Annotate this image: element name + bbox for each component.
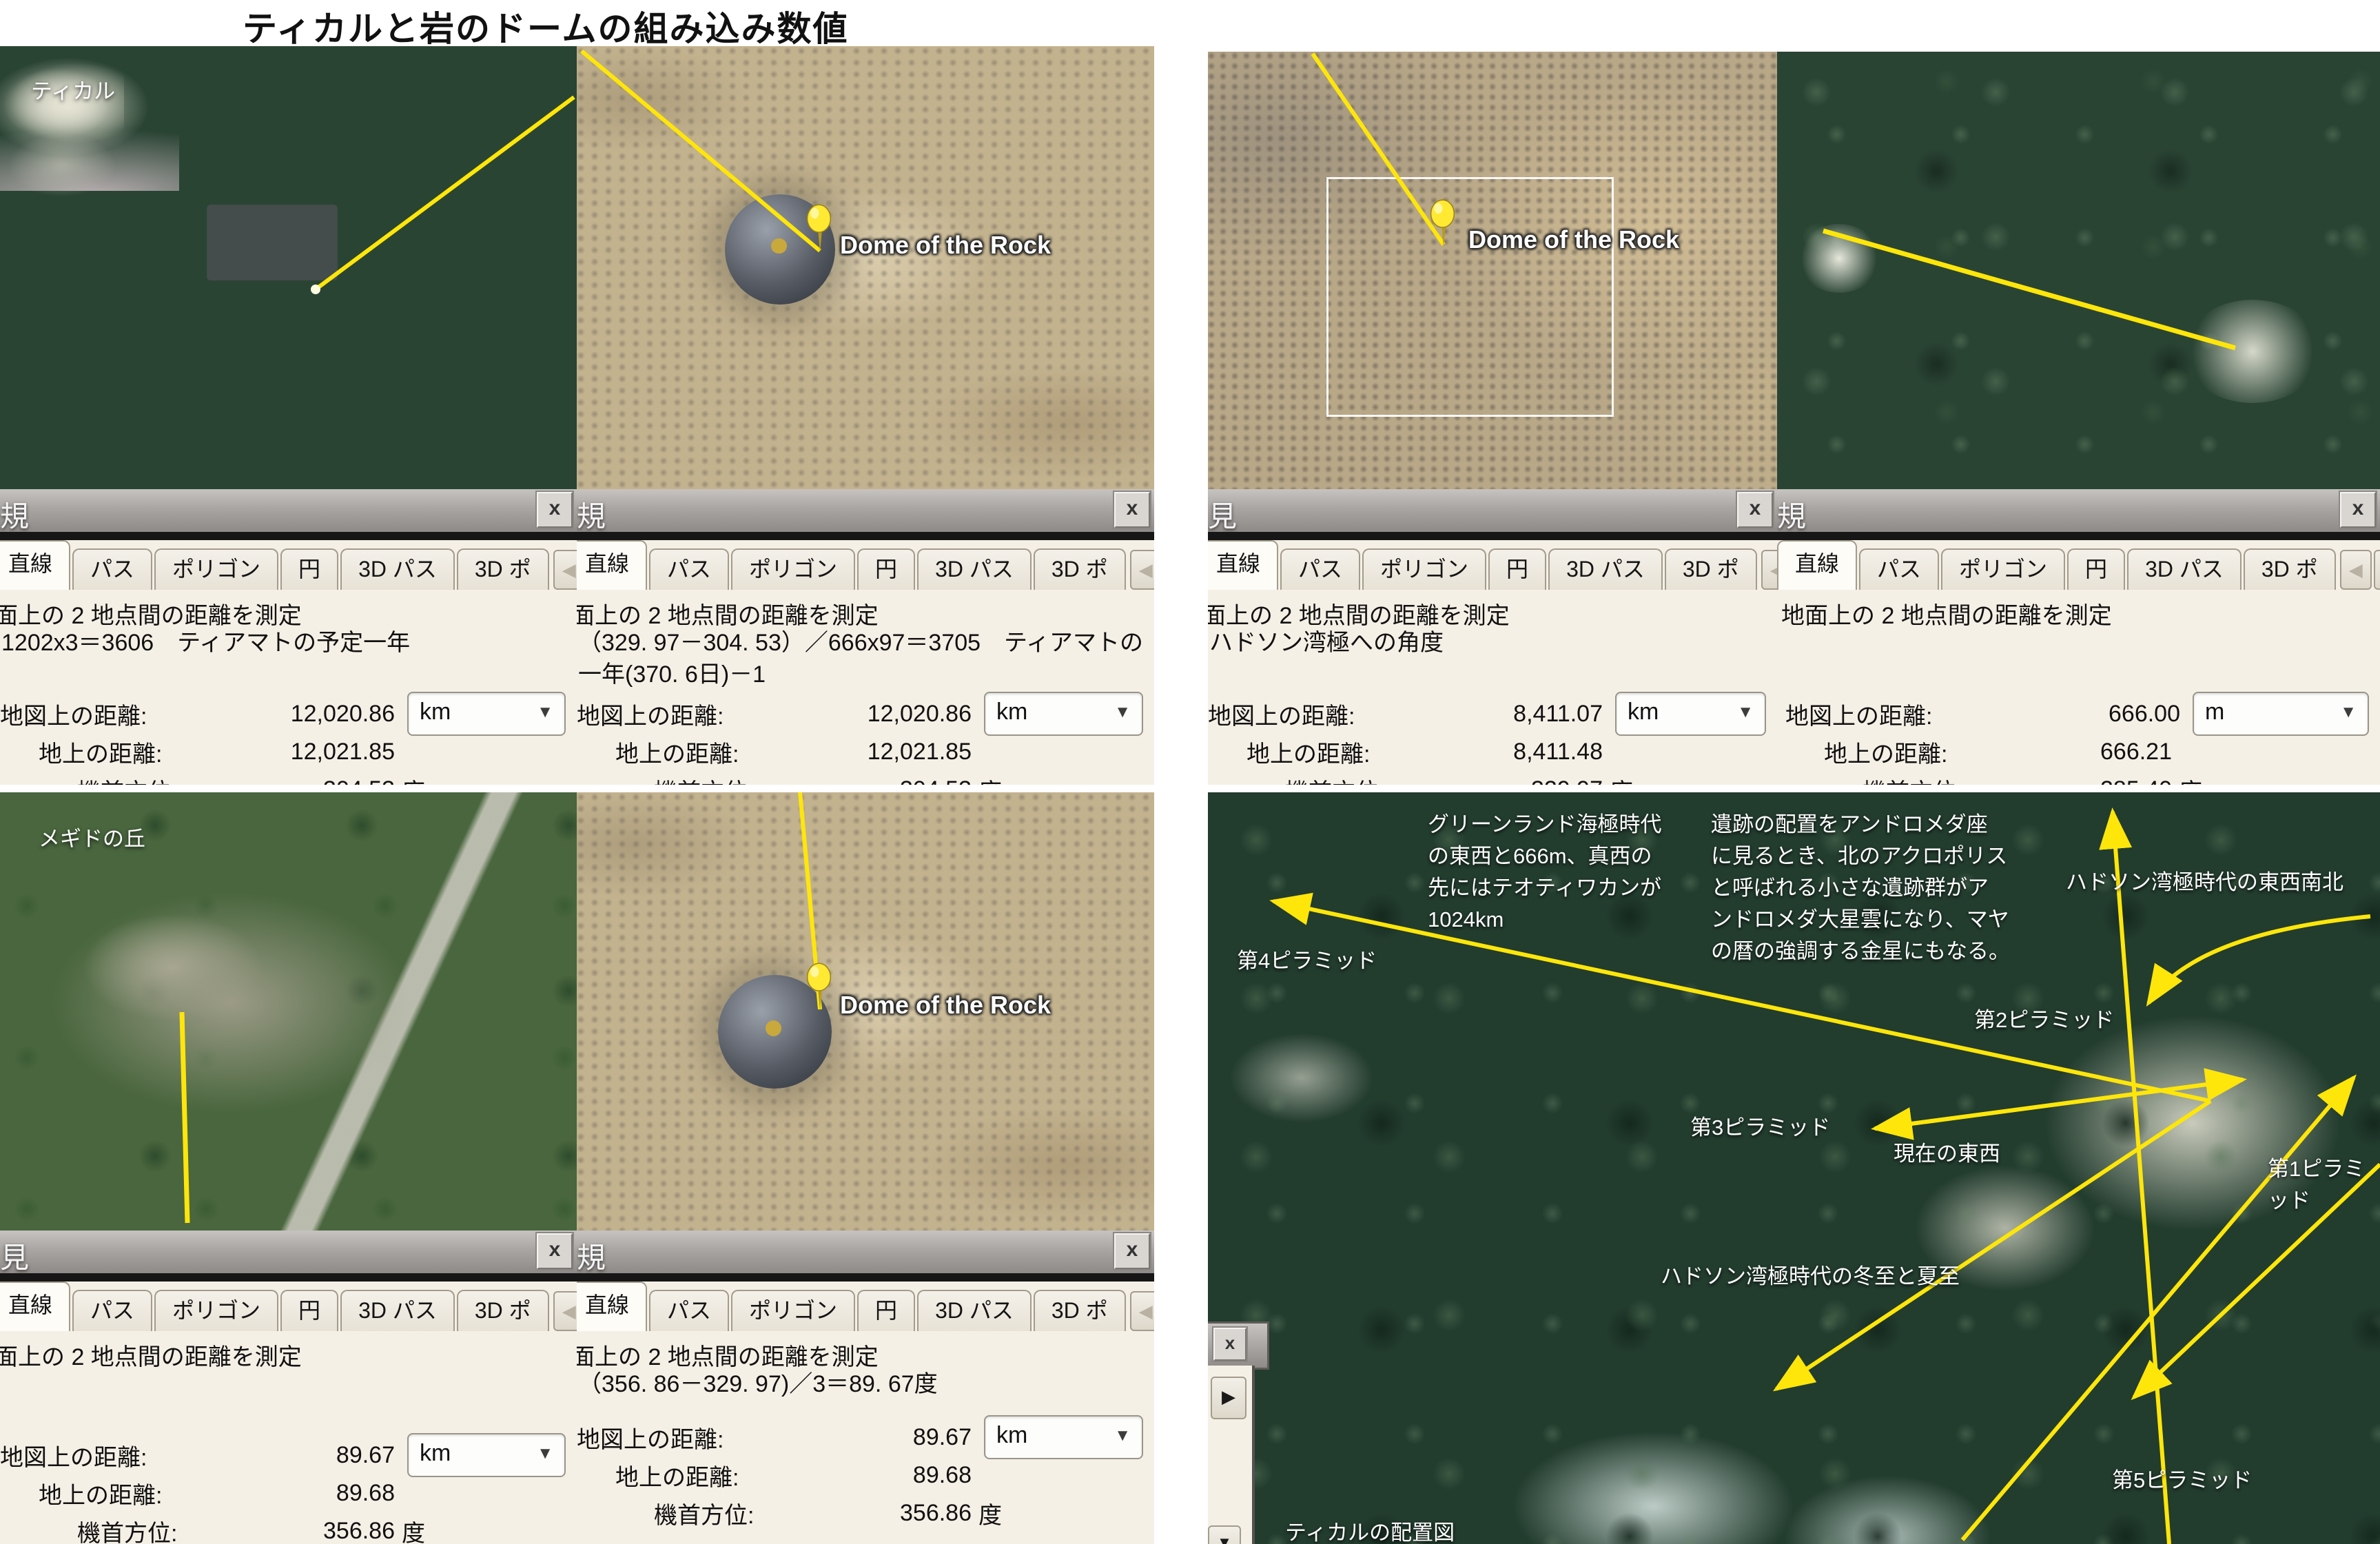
tikal-satellite-view[interactable]: ティカル	[0, 46, 577, 489]
map-distance-value: 12,020.86	[814, 701, 972, 728]
heading-value: 285.40	[2015, 776, 2172, 785]
heading-label: 機首方位:	[1208, 773, 1446, 785]
ground-distance-value: 12,021.85	[814, 739, 972, 765]
unit-dropdown[interactable]: km▼	[1615, 692, 1766, 736]
tab-scroll-right-button[interactable]: ▶	[1211, 1377, 1247, 1419]
tab-3d-polygon[interactable]: 3D ポ	[1034, 548, 1126, 590]
map-pin-icon[interactable]	[1428, 198, 1459, 248]
ruler-titlebar[interactable]: 規 x	[577, 1231, 1154, 1281]
map-pin-icon[interactable]	[804, 203, 836, 253]
pyramid5-label: 第5ピラミッド	[2112, 1465, 2252, 1496]
close-icon[interactable]: x	[1114, 492, 1150, 528]
map-distance-label: 地図上の距離:	[577, 697, 814, 731]
ruler-titlebar[interactable]: 見 x	[0, 1231, 577, 1281]
tab-line[interactable]: 直線	[577, 540, 647, 590]
close-icon[interactable]: x	[1213, 1328, 1247, 1361]
heading-label: 機首方位:	[577, 773, 814, 785]
close-icon[interactable]: x	[1737, 492, 1773, 528]
tab-line[interactable]: 直線	[577, 1281, 647, 1331]
unit-dropdown[interactable]: m▼	[2193, 692, 2369, 736]
clipped-window-body: ▶ ▼	[1208, 1366, 1255, 1544]
tab-line[interactable]: 直線	[1208, 540, 1278, 590]
user-note: ハドソン湾極への角度	[1209, 627, 1777, 693]
user-note: （356. 86－329. 97)／3＝89. 67度	[578, 1368, 1154, 1417]
close-icon[interactable]: x	[2340, 492, 2376, 528]
dome-satellite-view[interactable]: Dome of the Rock	[577, 46, 1154, 489]
ruler-window-megiddo: 見 x 直線パスポリゴン円3D パス3D ポ◀▶ 面上の 2 地点間の距離を測定…	[0, 1231, 577, 1544]
ruler-tabstrip: 直線パスポリゴン円3D パス3D ポ◀▶	[0, 1281, 577, 1331]
degree-unit: 度	[978, 773, 1002, 785]
hudson-ew-ns-label: ハドソン湾極時代の東西南北	[2066, 867, 2343, 898]
quadrant-dome-closeup: Dome of the Rock 規 x 直線パスポリゴン円3D パス3D ポ◀…	[577, 46, 1154, 785]
ruler-titlebar[interactable]: 規 x	[0, 489, 577, 540]
dome-placemark-label: Dome of the Rock	[1468, 225, 1679, 254]
degree-unit: 度	[978, 1496, 1002, 1530]
measure-heading: 面上の 2 地点間の距離を測定	[577, 1338, 1154, 1368]
ruler-titlebar[interactable]: 見 x	[1208, 489, 1777, 540]
current-ew-label: 現在の東西	[1894, 1138, 2000, 1170]
heading-value: 304.53	[814, 776, 972, 785]
tab-3d-polygon[interactable]: 3D ポ	[2244, 548, 2336, 590]
pyramid3-label: 第3ピラミッド	[1690, 1112, 1830, 1144]
tab-path[interactable]: パス	[72, 1290, 152, 1331]
tab-3d-path[interactable]: 3D パス	[2127, 548, 2241, 590]
tab-polygon[interactable]: ポリゴン	[731, 548, 855, 590]
measure-heading: 面上の 2 地点間の距離を測定	[1208, 597, 1777, 627]
tab-circle[interactable]: 円	[280, 548, 338, 590]
measure-heading: 面上の 2 地点間の距離を測定	[577, 597, 1154, 627]
pyramid2-label: 第2ピラミッド	[1974, 1005, 2114, 1036]
heading-label: 機首方位:	[0, 1514, 238, 1544]
ruler-window-dome-2: 規 x 直線パスポリゴン円3D パス3D ポ◀▶ 面上の 2 地点間の距離を測定…	[577, 1231, 1154, 1544]
ground-distance-label: 地上の距離:	[0, 1476, 238, 1510]
ground-distance-value: 666.21	[2015, 739, 2172, 765]
heading-value: 356.86	[238, 1518, 395, 1544]
tab-path[interactable]: パス	[649, 1290, 729, 1331]
ruler-window-tikal: 規 x 直線パスポリゴン円3D パス3D ポ◀▶ 面上の 2 地点間の距離を測定…	[0, 489, 577, 785]
tab-scroll-left-button[interactable]: ◀	[2340, 550, 2372, 590]
degree-unit: 度	[402, 1514, 425, 1544]
tab-polygon[interactable]: ポリゴン	[154, 548, 278, 590]
tab-polygon[interactable]: ポリゴン	[1941, 548, 2065, 590]
map-distance-value: 12,020.86	[238, 701, 395, 728]
ruler-tabstrip: 直線パスポリゴン円3D パス3D ポ◀▶	[577, 540, 1154, 590]
greenland-note: グリーンランド海極時代 の東西と666m、真西の 先にはテオティワカンが 102…	[1428, 809, 1690, 936]
tab-3d-path[interactable]: 3D パス	[917, 548, 1032, 590]
tab-3d-polygon[interactable]: 3D ポ	[457, 548, 549, 590]
tab-line[interactable]: 直線	[1777, 540, 1857, 590]
ground-distance-value: 8,411.48	[1446, 739, 1603, 765]
ruler-window-dome: 規 x 直線パスポリゴン円3D パス3D ポ◀▶ 面上の 2 地点間の距離を測定…	[577, 489, 1154, 785]
tikal-measure-line	[0, 46, 577, 489]
hudson-solstice-label: ハドソン湾極時代の冬至と夏至	[1661, 1261, 1960, 1293]
quadrant-dome-vertical: Dome of the Rock 規 x 直線パスポリゴン円3D パス3D ポ◀…	[577, 792, 1154, 1544]
tab-scroll-right-button[interactable]: ▶	[2374, 550, 2380, 590]
ground-distance-label: 地上の距離:	[1208, 735, 1446, 769]
ground-distance-label: 地上の距離:	[577, 1459, 814, 1492]
jerusalem-satellite-view[interactable]: Dome of the Rock	[1208, 52, 1777, 489]
tab-circle[interactable]: 円	[857, 548, 915, 590]
titlebar-text: 規	[1777, 493, 1806, 535]
user-note	[1778, 627, 2380, 693]
tab-path[interactable]: パス	[1280, 548, 1360, 590]
heading-value: 329.97	[1446, 776, 1603, 785]
unit-dropdown[interactable]: km▼	[984, 692, 1143, 736]
chevron-down-icon[interactable]: ▼	[1208, 1525, 1241, 1544]
tab-scroll-left-button[interactable]: ◀	[1130, 1291, 1154, 1331]
dome-measure-line	[577, 46, 1154, 489]
map-distance-label: 地図上の距離:	[0, 697, 238, 731]
ground-distance-label: 地上の距離:	[0, 735, 238, 769]
tab-3d-path[interactable]: 3D パス	[340, 548, 455, 590]
tab-3d-path[interactable]: 3D パス	[340, 1290, 455, 1331]
map-distance-label: 地図上の距離:	[1777, 697, 2023, 731]
ruler-tabstrip: 直線パスポリゴン円3D パス3D ポ◀▶	[1208, 540, 1777, 590]
tikal-666-line	[1777, 52, 2380, 489]
titlebar-text: 見	[1208, 493, 1237, 535]
tab-scroll-left-button[interactable]: ◀	[553, 550, 577, 590]
ground-distance-label: 地上の距離:	[577, 735, 814, 769]
titlebar-text: 規	[577, 493, 606, 535]
tab-circle[interactable]: 円	[280, 1290, 338, 1331]
dome-placemark-label: Dome of the Rock	[840, 991, 1051, 1020]
tab-3d-path[interactable]: 3D パス	[917, 1290, 1032, 1331]
ground-distance-label: 地上の距離:	[1777, 735, 2015, 769]
tab-polygon[interactable]: ポリゴン	[1362, 548, 1486, 590]
tab-line[interactable]: 直線	[0, 1281, 70, 1331]
tab-circle[interactable]: 円	[1488, 548, 1546, 590]
map-distance-label: 地図上の距離:	[1208, 697, 1446, 731]
unit-dropdown[interactable]: km▼	[407, 692, 566, 736]
tikal-666-satellite-view[interactable]	[1777, 52, 2380, 489]
quadrant-tikal: ティカル 規 x 直線パスポリゴン円3D パス3D ポ◀▶ 面上の 2 地点間の…	[0, 46, 577, 785]
pyramid1-label: 第1ピラミッド	[2268, 1153, 2380, 1217]
ruler-tabstrip: 直線パスポリゴン円3D パス3D ポ◀▶	[577, 1281, 1154, 1331]
quadrant-megiddo: メギドの丘 見 x 直線パスポリゴン円3D パス3D ポ◀▶ 面上の 2 地点間…	[0, 792, 577, 1544]
heading-value: 356.86	[814, 1500, 972, 1527]
chevron-down-icon: ▼	[1737, 703, 1754, 722]
user-note	[1, 1368, 577, 1434]
ruler-window-jerusalem: 見 x 直線パスポリゴン円3D パス3D ポ◀▶ 面上の 2 地点間の距離を測定…	[1208, 489, 1777, 785]
ground-distance-value: 89.68	[238, 1480, 395, 1507]
page-title: ティカルと岩のドームの組み込み数値	[243, 1, 849, 51]
titlebar-text: 規	[0, 493, 29, 535]
chevron-down-icon: ▼	[537, 703, 553, 722]
megiddo-satellite-view[interactable]: メギドの丘	[0, 792, 577, 1231]
map-caption: ティカルの配置図	[1285, 1517, 1455, 1544]
ruler-titlebar[interactable]: 規 x	[1777, 489, 2380, 540]
close-icon[interactable]: x	[537, 1233, 573, 1269]
quadrant-jerusalem: Dome of the Rock 見 x 直線パスポリゴン円3D パス3D ポ◀…	[1208, 52, 1777, 785]
chevron-down-icon: ▼	[2340, 703, 2357, 722]
tab-circle[interactable]: 円	[2067, 548, 2125, 590]
tab-path[interactable]: パス	[1859, 548, 1939, 590]
tab-path[interactable]: パス	[649, 548, 729, 590]
map-distance-label: 地図上の距離:	[577, 1421, 814, 1454]
heading-label: 機首方位:	[577, 1496, 814, 1530]
degree-unit: 度	[2179, 773, 2202, 785]
dome-placemark-label: Dome of the Rock	[840, 231, 1051, 260]
measure-heading: 地面上の 2 地点間の距離を測定	[1781, 597, 2380, 627]
map-distance-value: 89.67	[238, 1442, 395, 1469]
ruler-titlebar[interactable]: 規 x	[577, 489, 1154, 540]
tab-polygon[interactable]: ポリゴン	[154, 1290, 278, 1331]
tab-scroll-left-button[interactable]: ◀	[1130, 550, 1154, 590]
unit-dropdown[interactable]: km▼	[407, 1433, 566, 1477]
chevron-down-icon: ▼	[1114, 703, 1131, 722]
tikal-layout-map[interactable]: グリーンランド海極時代 の東西と666m、真西の 先にはテオティワカンが 102…	[1208, 792, 2380, 1544]
degree-unit: 度	[1610, 773, 1633, 785]
tab-circle[interactable]: 円	[857, 1290, 915, 1331]
jerusalem-measure-line	[1208, 52, 1777, 489]
titlebar-text: 見	[0, 1235, 29, 1277]
tab-scroll-left-button[interactable]: ◀	[553, 1291, 577, 1331]
ruler-window-666m: 規 x 直線パスポリゴン円3D パス3D ポ◀▶ 地面上の 2 地点間の距離を測…	[1777, 489, 2380, 785]
user-note: （329. 97－304. 53）／666x97＝3705 ティアマトの一年(3…	[578, 627, 1154, 693]
map-distance-value: 666.00	[2023, 701, 2180, 728]
titlebar-text: 規	[577, 1235, 606, 1277]
ruler-tabstrip: 直線パスポリゴン円3D パス3D ポ◀▶	[0, 540, 577, 590]
tab-3d-polygon[interactable]: 3D ポ	[457, 1290, 549, 1331]
ground-distance-value: 89.68	[814, 1462, 972, 1489]
measure-heading: 面上の 2 地点間の距離を測定	[0, 597, 577, 627]
map-distance-value: 8,411.07	[1446, 701, 1603, 728]
megiddo-label: メギドの丘	[39, 821, 145, 852]
heading-label: 機首方位:	[0, 773, 238, 785]
measure-heading: 面上の 2 地点間の距離を測定	[0, 1338, 577, 1368]
map-distance-label: 地図上の距離:	[0, 1439, 238, 1472]
heading-label: 機首方位:	[1777, 773, 2015, 785]
unit-dropdown[interactable]: km▼	[984, 1415, 1143, 1459]
megiddo-measure-line	[0, 792, 577, 1231]
andromeda-note: 遺跡の配置をアンドロメダ座 に見るとき、北のアクロポリス と呼ばれる小さな遺跡群…	[1711, 809, 2055, 967]
tab-3d-path[interactable]: 3D パス	[1548, 548, 1663, 590]
map-distance-value: 89.67	[814, 1424, 972, 1451]
heading-value: 304.53	[238, 776, 395, 785]
ground-distance-value: 12,021.85	[238, 739, 395, 765]
map-pin-icon[interactable]	[804, 962, 836, 1011]
chevron-down-icon: ▼	[1114, 1426, 1131, 1445]
tab-3d-polygon[interactable]: 3D ポ	[1665, 548, 1757, 590]
degree-unit: 度	[402, 773, 425, 785]
close-icon[interactable]: x	[537, 492, 573, 528]
tikal-label: ティカル	[31, 74, 115, 105]
pyramid4-label: 第4ピラミッド	[1237, 945, 1377, 977]
dome-satellite-view-2[interactable]: Dome of the Rock	[577, 792, 1154, 1231]
tab-scroll-left-button[interactable]: ◀	[1761, 550, 1777, 590]
ruler-tabstrip: 直線パスポリゴン円3D パス3D ポ◀▶	[1777, 540, 2380, 590]
quadrant-tikal-666m: 規 x 直線パスポリゴン円3D パス3D ポ◀▶ 地面上の 2 地点間の距離を測…	[1777, 52, 2380, 785]
chevron-down-icon: ▼	[537, 1444, 553, 1463]
tab-path[interactable]: パス	[72, 548, 152, 590]
tab-polygon[interactable]: ポリゴン	[731, 1290, 855, 1331]
tab-3d-polygon[interactable]: 3D ポ	[1034, 1290, 1126, 1331]
tab-line[interactable]: 直線	[0, 540, 70, 590]
user-note: 1202x3＝3606 ティアマトの予定一年	[1, 627, 577, 693]
close-icon[interactable]: x	[1114, 1233, 1150, 1269]
clipped-window-titlebar: x	[1208, 1321, 1269, 1370]
